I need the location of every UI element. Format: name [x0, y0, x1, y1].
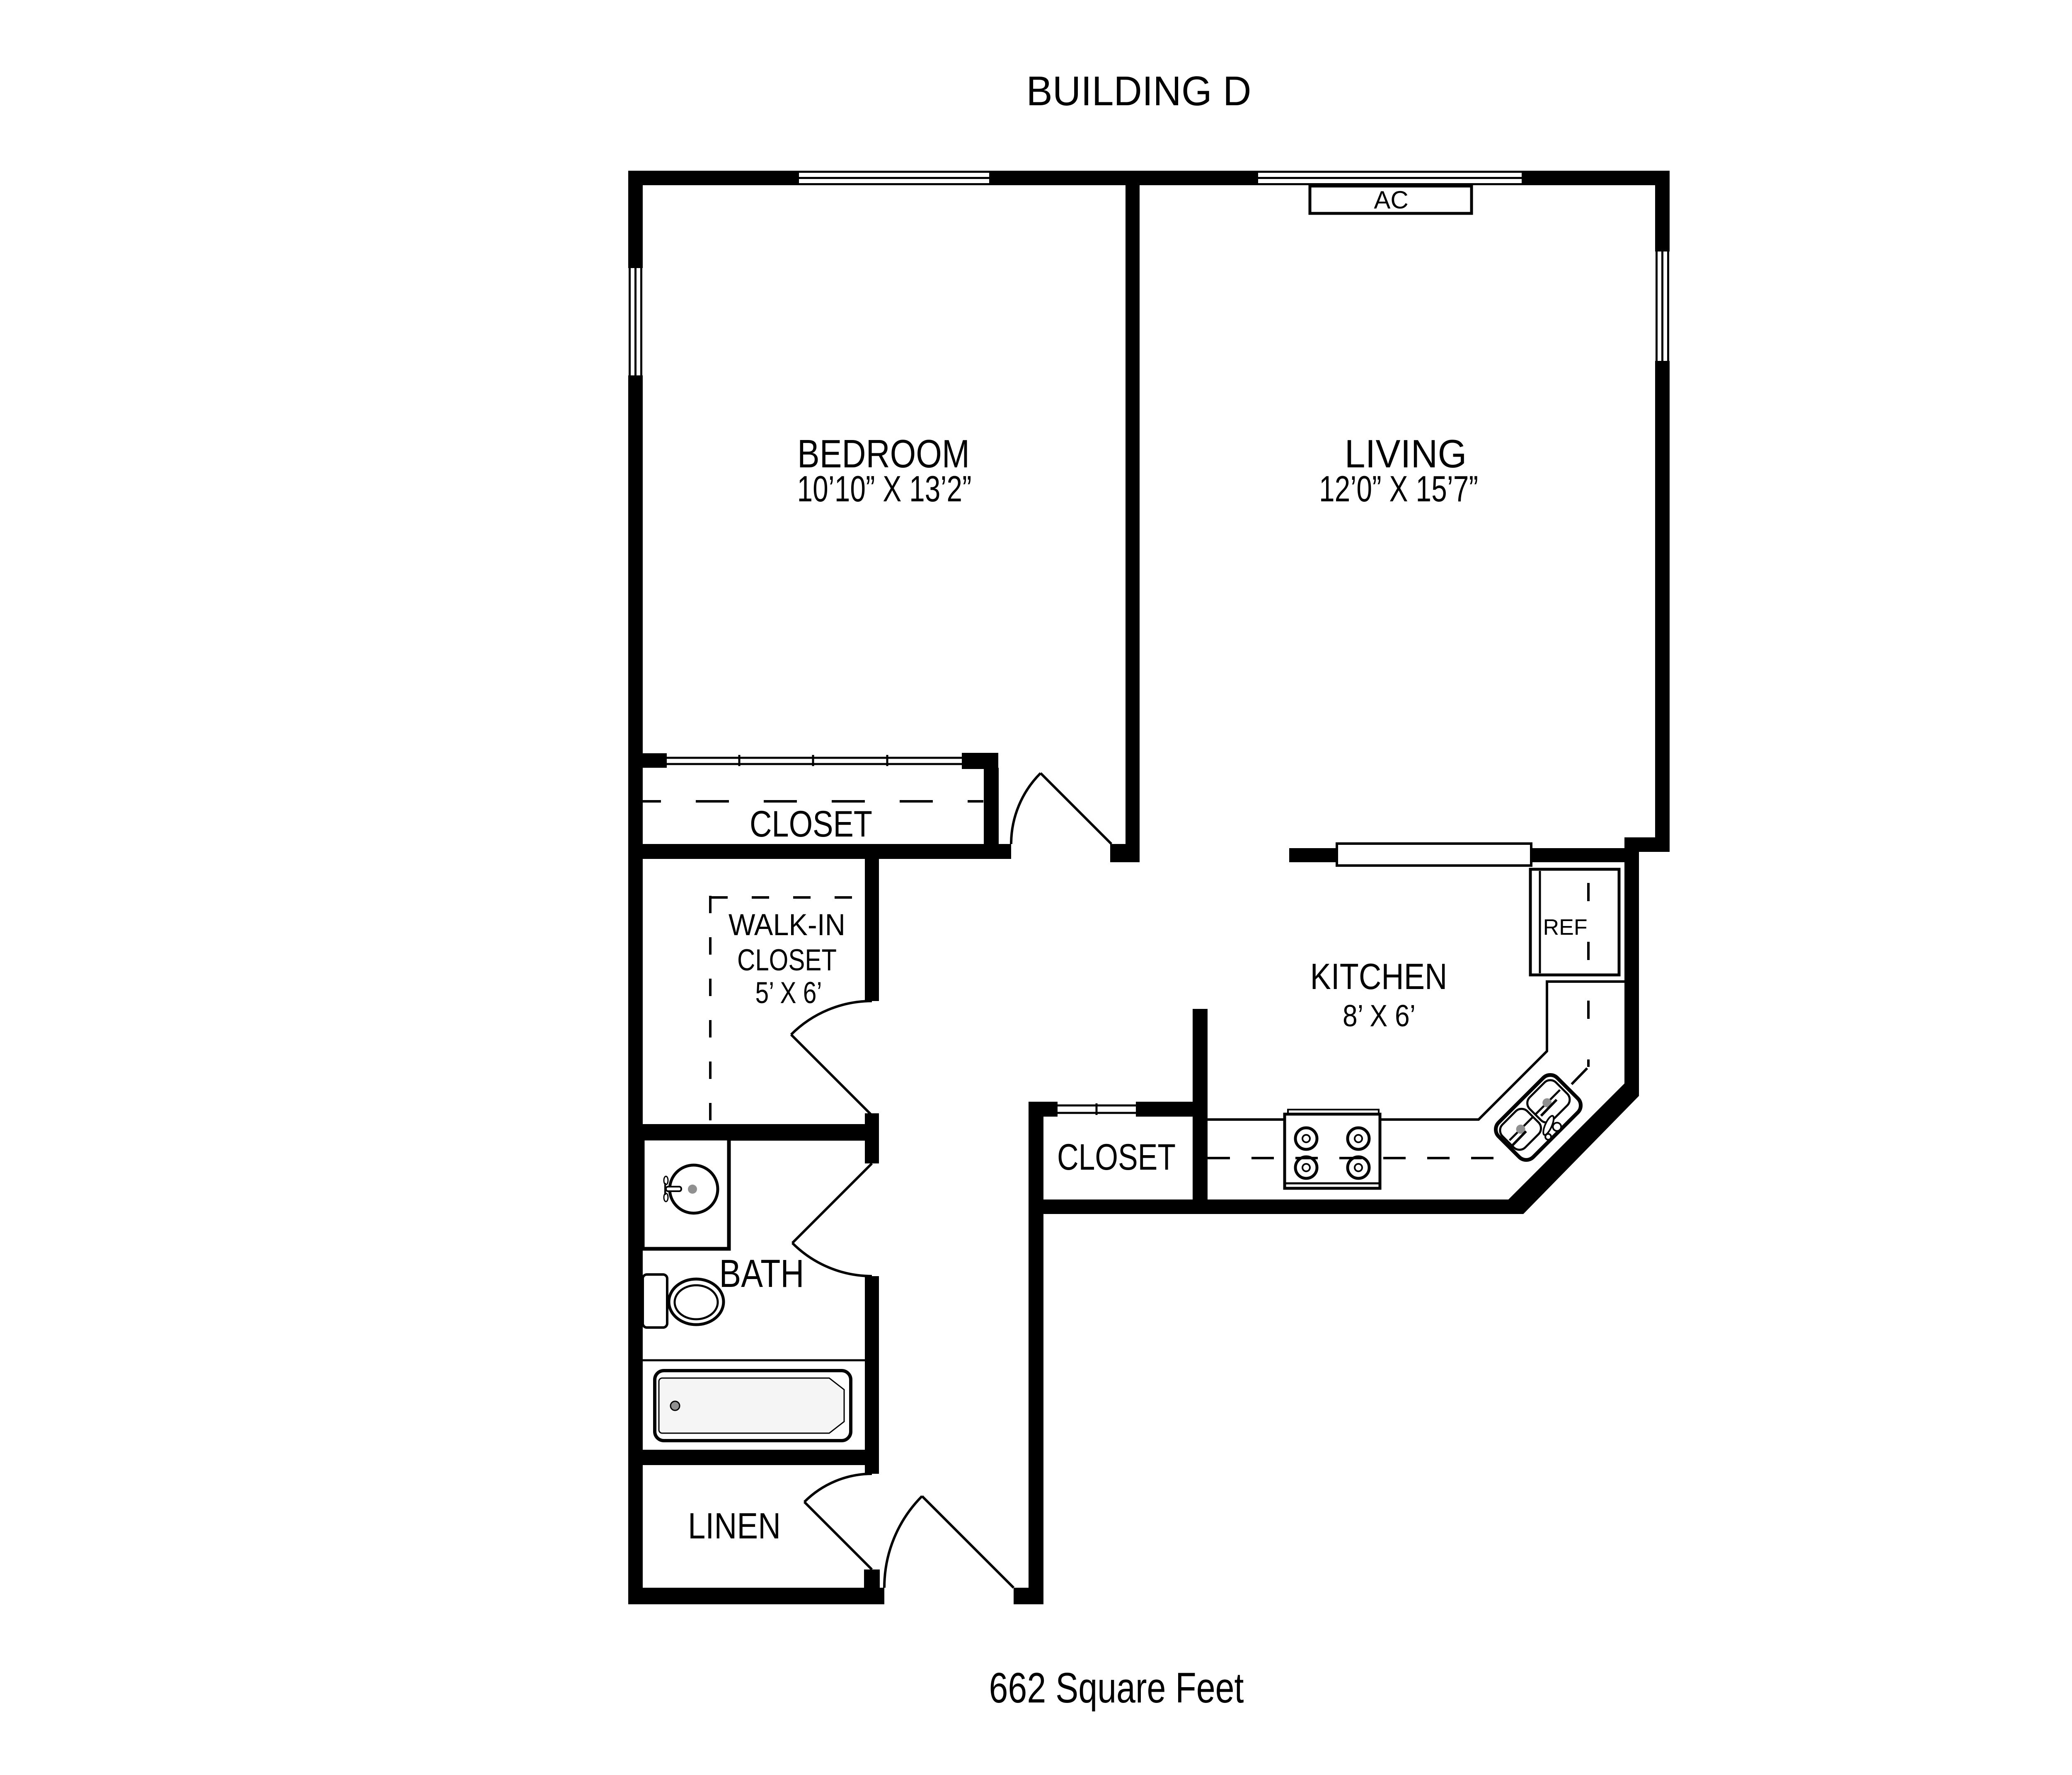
svg-text:CLOSET: CLOSET: [737, 943, 837, 977]
svg-text:CLOSET: CLOSET: [750, 803, 872, 844]
svg-text:8’ X 6’: 8’ X 6’: [1343, 999, 1416, 1033]
svg-text:CLOSET: CLOSET: [1057, 1136, 1176, 1178]
svg-text:LINEN: LINEN: [688, 1505, 781, 1546]
svg-text:BATH: BATH: [719, 1252, 804, 1296]
svg-text:REF: REF: [1543, 915, 1588, 940]
svg-text:662 Square Feet: 662 Square Feet: [989, 1664, 1244, 1712]
svg-text:WALK-IN: WALK-IN: [729, 908, 845, 942]
svg-text:AC: AC: [1374, 186, 1408, 214]
svg-text:BUILDING D: BUILDING D: [1026, 68, 1251, 114]
svg-text:10’10” X 13’2”: 10’10” X 13’2”: [797, 468, 972, 509]
svg-text:5’ X 6’: 5’ X 6’: [755, 976, 822, 1010]
svg-text:KITCHEN: KITCHEN: [1310, 956, 1447, 997]
svg-text:12’0” X 15’7”: 12’0” X 15’7”: [1319, 468, 1478, 509]
